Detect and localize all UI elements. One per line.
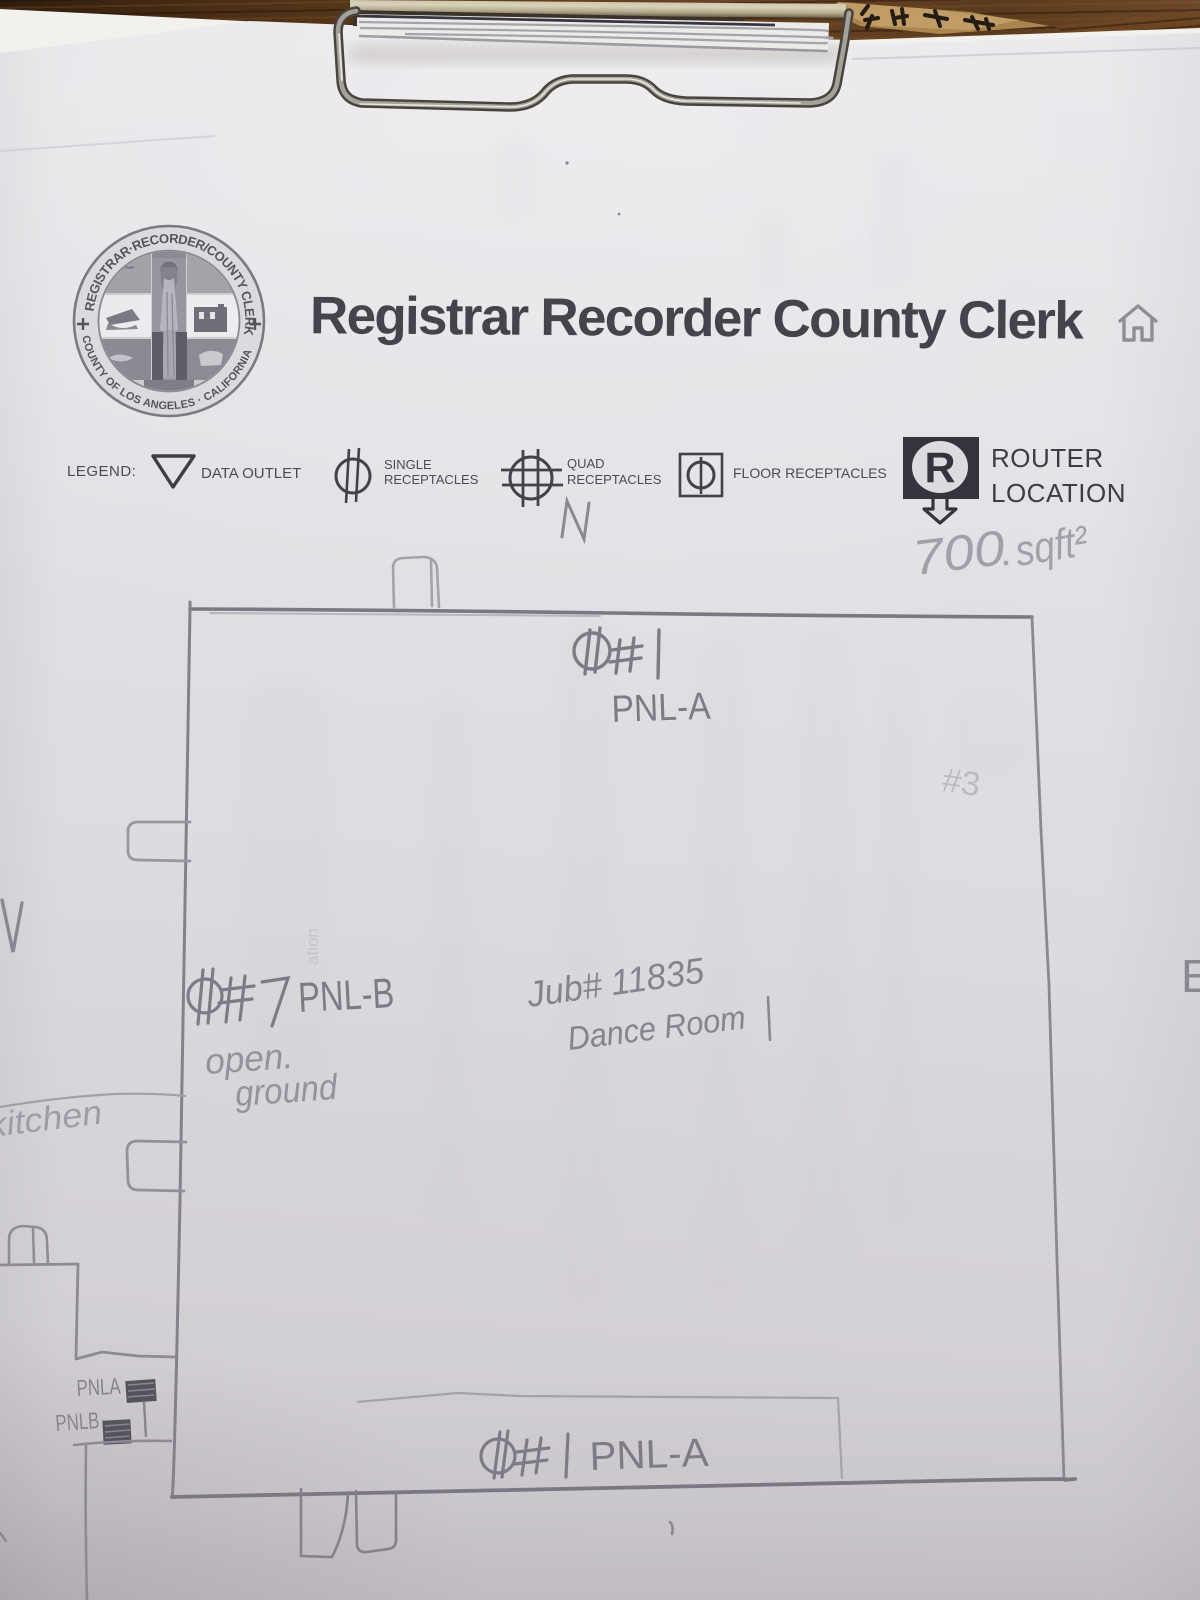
svg-text:E: E xyxy=(1181,950,1200,1002)
svg-text:PNL-A: PNL-A xyxy=(589,1431,710,1479)
svg-text:kitchen: kitchen xyxy=(0,1094,104,1146)
svg-text:PNLA: PNLA xyxy=(76,1373,122,1401)
svg-text:700: 700 xyxy=(910,521,1008,586)
svg-text:PNL-B: PNL-B xyxy=(297,969,395,1021)
svg-text:ation: ation xyxy=(303,928,322,965)
svg-text:PNL-A: PNL-A xyxy=(611,686,712,731)
svg-text:ground: ground xyxy=(234,1066,339,1114)
svg-text:#3: #3 xyxy=(940,761,983,804)
svg-text:sqft²: sqft² xyxy=(1012,517,1092,576)
svg-text:PNLB: PNLB xyxy=(55,1407,101,1436)
